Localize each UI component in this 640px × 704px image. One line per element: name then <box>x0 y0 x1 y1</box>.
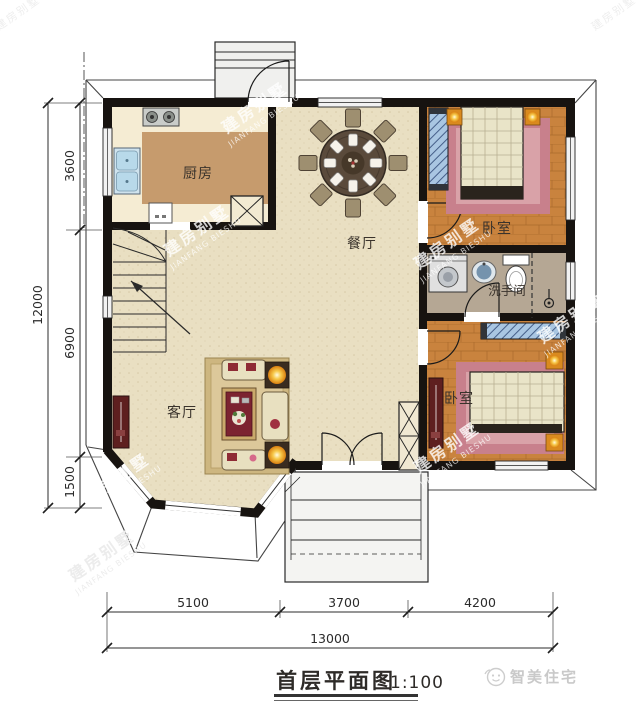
dim-left-0: 3600 <box>62 150 77 182</box>
dining-top-window <box>318 98 382 107</box>
bed-top <box>461 107 523 199</box>
dimension-bottom: 5100 3700 4200 13000 <box>102 592 558 653</box>
dim-bottom-2: 4200 <box>464 595 496 610</box>
kitchen-left-window <box>103 128 112 196</box>
dim-bottom-0: 5100 <box>177 595 209 610</box>
bedroom-top-wardrobe <box>429 108 448 190</box>
kitchen-cabinet-box <box>149 203 172 223</box>
nightstand-bottom-down <box>546 434 563 451</box>
side-lamp-top <box>265 362 289 388</box>
dim-bottom-total: 13000 <box>310 631 350 646</box>
dim-left-1: 6900 <box>62 327 77 359</box>
room-label-living: 客厅 <box>167 404 197 421</box>
watermark-corner: 建房别墅 <box>0 0 43 33</box>
dim-left-2: 1500 <box>62 466 77 498</box>
kitchen-sink <box>114 148 140 194</box>
room-label-dining: 餐厅 <box>347 236 377 252</box>
dim-bottom-1: 3700 <box>328 595 360 610</box>
nightstand-top-left <box>447 109 462 125</box>
sofa-right <box>262 392 288 440</box>
room-label-bathroom: 洗手间 <box>488 283 526 298</box>
tv-cabinet <box>429 378 443 448</box>
living-left-window <box>103 296 112 318</box>
room-label-kitchen: 厨房 <box>183 166 213 182</box>
watermark-corner: 建房别墅 <box>588 0 639 33</box>
stove <box>143 108 179 126</box>
dim-left-total: 12000 <box>30 285 45 325</box>
title-text: 首层平面图 <box>276 669 396 693</box>
side-lamp-bottom <box>265 442 289 468</box>
bathroom-right-window <box>566 262 575 300</box>
bedroom-bottom-window <box>495 461 548 470</box>
living-left-cabinet <box>113 396 129 448</box>
title-scale: 1:100 <box>390 673 444 693</box>
brand-name: 智美住宅 <box>510 668 578 686</box>
bedroom-top-right-window <box>566 137 575 220</box>
sofa-bottom <box>222 450 266 470</box>
smiley-face-icon <box>485 669 505 686</box>
dimension-left: 3600 6900 1500 12000 <box>30 98 102 513</box>
floor-plan-page: 厨房 餐厅 客厅 卧室 卧室 洗手间 建房别墅JIANFANG BIESHU 建… <box>0 0 640 704</box>
brand-logo: 智美住宅 <box>485 668 578 686</box>
bedroom-top-furniture <box>429 107 550 214</box>
sofa-set <box>205 358 289 474</box>
bed-bottom <box>470 372 564 433</box>
drawing-title: 首层平面图 1:100 <box>274 669 444 701</box>
nightstand-top-right <box>525 109 540 125</box>
sofa-top <box>222 360 266 380</box>
coffee-table <box>222 388 256 440</box>
wash-basin <box>472 261 496 283</box>
room-label-bedroom-bottom: 卧室 <box>444 390 474 407</box>
floor-plan-drawing: 厨房 餐厅 客厅 卧室 卧室 洗手间 建房别墅JIANFANG BIESHU 建… <box>0 0 640 704</box>
front-porch-steps <box>285 468 428 582</box>
dining-table-set <box>299 109 407 217</box>
